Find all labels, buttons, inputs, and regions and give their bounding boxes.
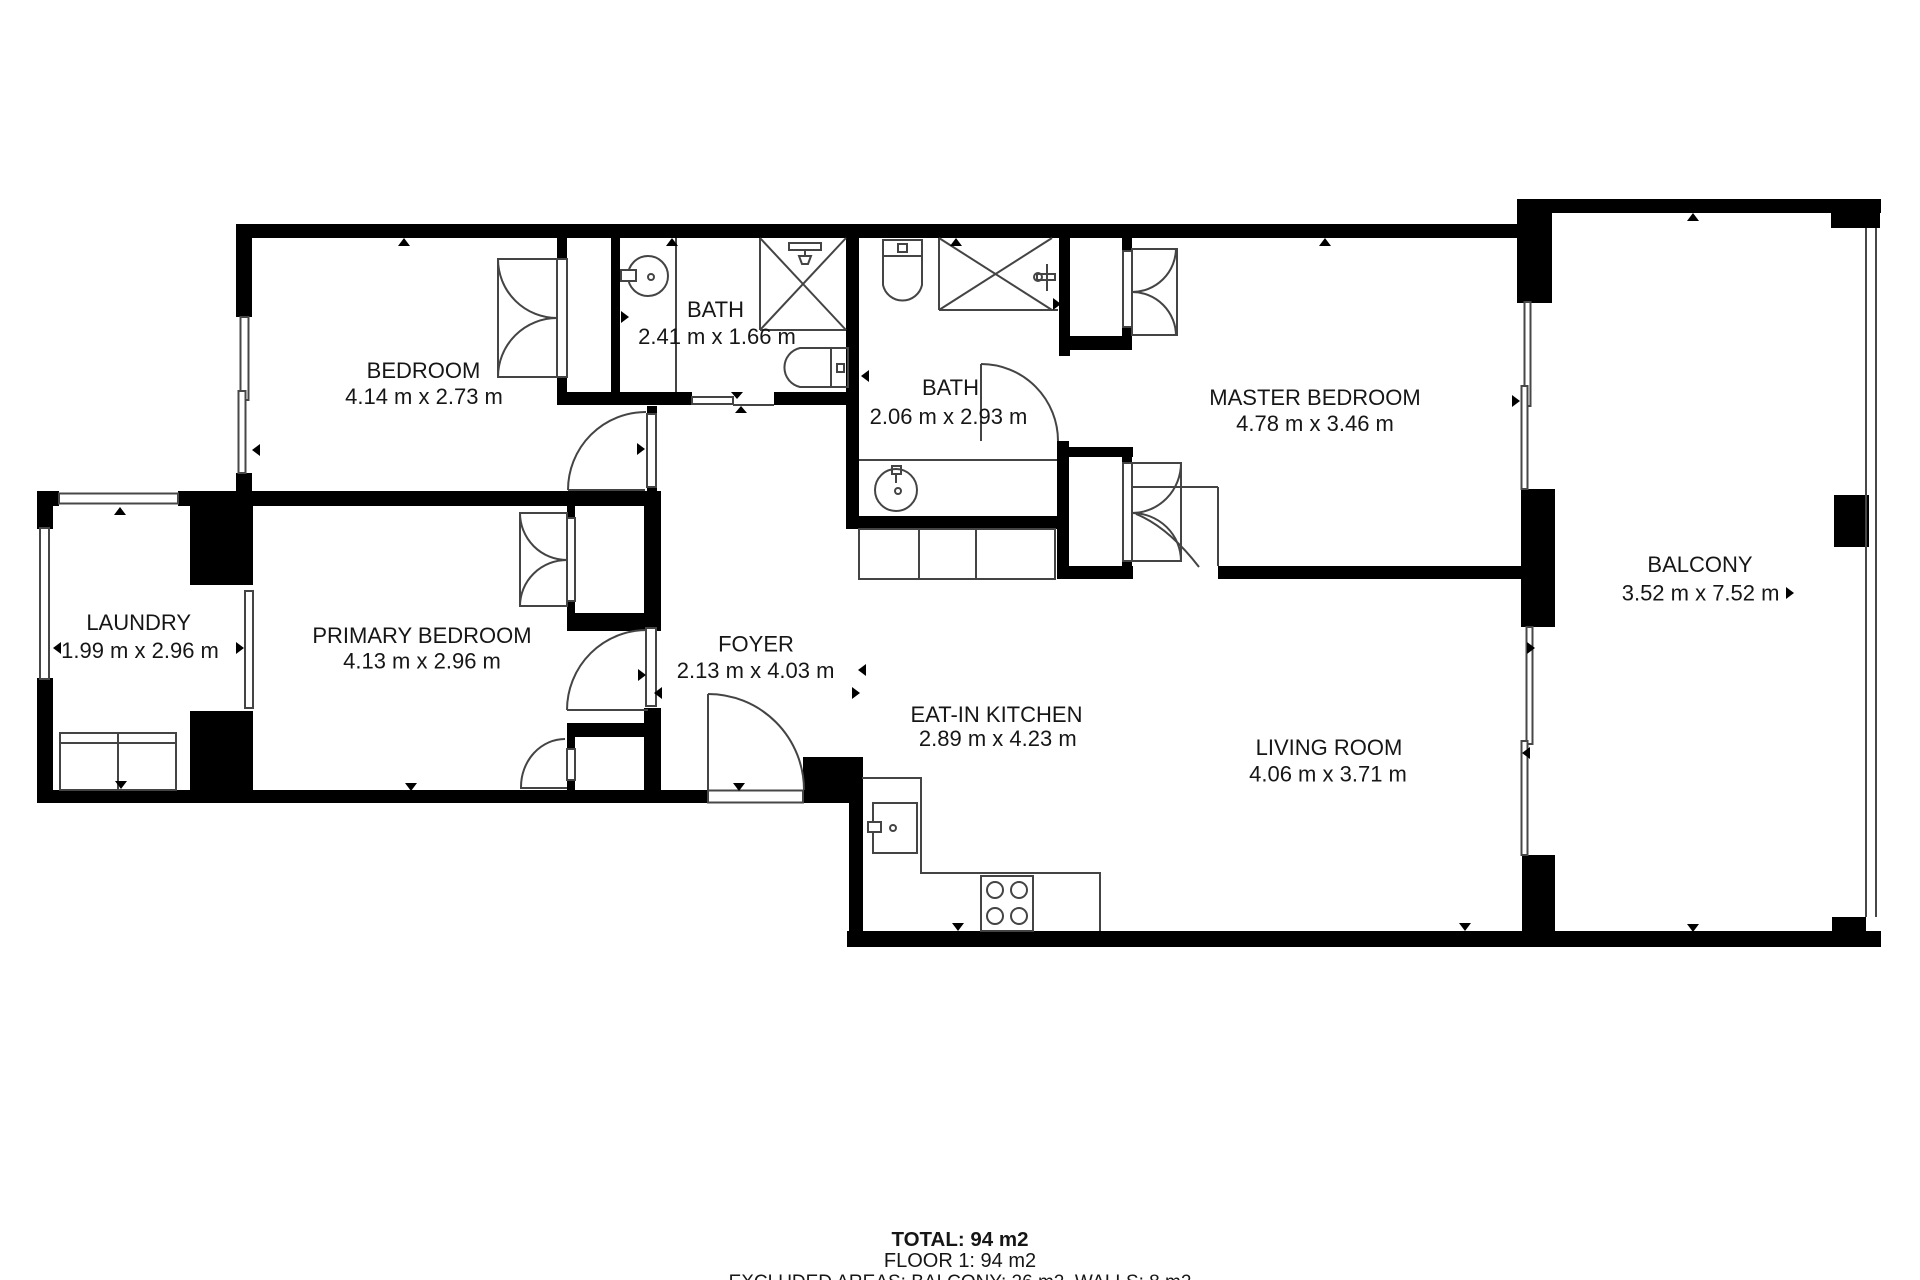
svg-text:4.06 m x 3.71 m: 4.06 m x 3.71 m xyxy=(1249,762,1407,787)
svg-text:PRIMARY BEDROOM: PRIMARY BEDROOM xyxy=(312,623,531,648)
svg-text:2.13 m x 4.03 m: 2.13 m x 4.03 m xyxy=(677,658,835,683)
svg-text:LIVING ROOM: LIVING ROOM xyxy=(1256,735,1403,760)
svg-text:BATH: BATH xyxy=(922,375,979,400)
svg-text:BEDROOM: BEDROOM xyxy=(367,358,481,383)
svg-text:2.89 m x 4.23 m: 2.89 m x 4.23 m xyxy=(919,726,1077,751)
svg-text:4.78 m x 3.46 m: 4.78 m x 3.46 m xyxy=(1236,411,1394,436)
svg-text:BATH: BATH xyxy=(687,297,744,322)
svg-text:MASTER BEDROOM: MASTER BEDROOM xyxy=(1209,385,1420,410)
svg-text:TOTAL: 94 m2: TOTAL: 94 m2 xyxy=(891,1228,1028,1251)
svg-text:2.41 m x 1.66 m: 2.41 m x 1.66 m xyxy=(638,324,796,349)
svg-text:1.99 m x 2.96 m: 1.99 m x 2.96 m xyxy=(61,638,219,663)
svg-text:FLOOR 1: 94 m2: FLOOR 1: 94 m2 xyxy=(884,1250,1036,1272)
svg-text:BALCONY: BALCONY xyxy=(1647,552,1752,577)
svg-text:2.06 m x 2.93 m: 2.06 m x 2.93 m xyxy=(870,404,1028,429)
svg-text:4.14 m x 2.73 m: 4.14 m x 2.73 m xyxy=(345,384,503,409)
svg-text:3.52 m x 7.52 m: 3.52 m x 7.52 m xyxy=(1622,581,1780,606)
svg-text:FOYER: FOYER xyxy=(718,632,794,657)
svg-text:EXCLUDED AREAS: BALCONY: 26 m2: EXCLUDED AREAS: BALCONY: 26 m2, WALLS: 8… xyxy=(729,1272,1192,1280)
svg-text:EAT-IN KITCHEN: EAT-IN KITCHEN xyxy=(911,702,1083,727)
svg-text:4.13 m x 2.96 m: 4.13 m x 2.96 m xyxy=(343,649,501,674)
svg-text:LAUNDRY: LAUNDRY xyxy=(86,610,191,635)
